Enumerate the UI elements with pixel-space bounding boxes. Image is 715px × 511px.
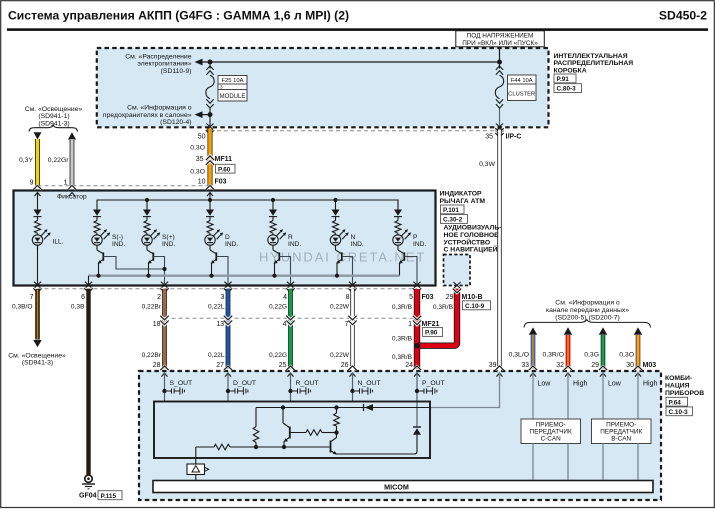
svg-text:C.80-3: C.80-3 xyxy=(557,86,577,93)
svg-text:C.10-3: C.10-3 xyxy=(669,409,689,416)
svg-text:High: High xyxy=(573,380,588,387)
svg-text:MF11: MF11 xyxy=(215,156,233,163)
svg-text:0,3W: 0,3W xyxy=(479,161,495,168)
svg-text:8: 8 xyxy=(346,294,350,301)
svg-text:ПРИЕМО-: ПРИЕМО- xyxy=(606,422,636,429)
svg-text:0,22L: 0,22L xyxy=(208,304,225,311)
svg-text:P.90: P.90 xyxy=(425,330,438,337)
svg-text:P.91: P.91 xyxy=(557,76,570,83)
svg-text:10: 10 xyxy=(198,179,206,186)
svg-text:N_OUT: N_OUT xyxy=(358,380,381,387)
svg-text:См. «Освещение»: См. «Освещение» xyxy=(25,106,83,113)
svg-text:C-CAN: C-CAN xyxy=(541,436,562,443)
svg-text:ПРИ «ВКЛ» ИЛИ «ПУСК»: ПРИ «ВКЛ» ИЛИ «ПУСК» xyxy=(462,40,538,47)
svg-text:29: 29 xyxy=(446,294,454,301)
svg-text:0,22G: 0,22G xyxy=(269,304,287,311)
svg-text:GF04: GF04 xyxy=(79,493,97,500)
svg-text:7: 7 xyxy=(345,321,349,328)
svg-text:35: 35 xyxy=(196,156,204,163)
svg-text:R_OUT: R_OUT xyxy=(296,380,319,387)
svg-text:С НАВИГАЦИЕЙ: С НАВИГАЦИЕЙ xyxy=(444,245,498,254)
svg-text:IND.: IND. xyxy=(413,241,426,248)
svg-text:0,3O: 0,3O xyxy=(190,168,205,175)
svg-text:D_OUT: D_OUT xyxy=(233,380,256,387)
svg-text:IND.: IND. xyxy=(288,241,301,248)
svg-text:CLUSTER: CLUSTER xyxy=(508,92,535,98)
svg-text:26: 26 xyxy=(341,362,349,369)
svg-text:4: 4 xyxy=(283,294,287,301)
svg-text:УСТРОЙСТВО: УСТРОЙСТВО xyxy=(444,237,491,246)
svg-text:0,3B: 0,3B xyxy=(71,304,85,311)
svg-text:Система управления АКПП (G4FG: Система управления АКПП (G4FG : GAMMA 1,… xyxy=(8,9,349,23)
svg-text:0,3R/O: 0,3R/O xyxy=(542,351,564,358)
svg-text:канале передачи данных»: канале передачи данных» xyxy=(546,307,629,314)
svg-text:I/P-C: I/P-C xyxy=(506,134,522,141)
svg-text:0,3O: 0,3O xyxy=(619,351,634,358)
svg-text:электропитания»: электропитания» xyxy=(137,61,191,68)
svg-text:0,22W: 0,22W xyxy=(330,304,350,311)
svg-text:28: 28 xyxy=(153,362,161,369)
svg-text:См. «Информация о: См. «Информация о xyxy=(127,105,192,112)
svg-text:0,22Br: 0,22Br xyxy=(142,352,162,359)
svg-text:B-CAN: B-CAN xyxy=(611,436,631,443)
svg-text:27: 27 xyxy=(216,362,224,369)
svg-text:0,22L: 0,22L xyxy=(208,352,225,359)
svg-text:M10-B: M10-B xyxy=(462,294,483,301)
svg-text:7: 7 xyxy=(30,294,34,301)
svg-text:35: 35 xyxy=(485,134,493,141)
svg-text:ILL.: ILL. xyxy=(53,239,64,246)
svg-text:ПЕРЕДАТЧИК: ПЕРЕДАТЧИК xyxy=(530,429,572,436)
svg-text:F44 10A: F44 10A xyxy=(511,78,533,84)
svg-text:См. «Распределение: См. «Распределение xyxy=(125,53,192,60)
svg-text:ПОД НАПРЯЖЕНИЕМ: ПОД НАПРЯЖЕНИЕМ xyxy=(467,33,534,40)
svg-text:Фиксатор: Фиксатор xyxy=(57,194,87,201)
svg-text:1: 1 xyxy=(64,179,68,186)
svg-text:ПЕРЕДАТЧИК: ПЕРЕДАТЧИК xyxy=(600,429,642,436)
svg-text:F03: F03 xyxy=(422,294,434,301)
svg-text:Low: Low xyxy=(608,380,622,387)
svg-text:0,3Y: 0,3Y xyxy=(19,157,33,164)
svg-text:50: 50 xyxy=(198,134,206,141)
svg-text:39: 39 xyxy=(489,362,497,369)
svg-text:MICOM: MICOM xyxy=(384,483,409,492)
svg-text:P.101: P.101 xyxy=(443,207,459,214)
svg-text:2: 2 xyxy=(157,294,161,301)
svg-text:КОРОБКА: КОРОБКА xyxy=(554,68,587,75)
svg-text:4: 4 xyxy=(283,321,287,328)
svg-text:Low: Low xyxy=(538,380,552,387)
svg-text:IND.: IND. xyxy=(225,241,238,248)
svg-text:3: 3 xyxy=(220,85,223,90)
svg-text:33: 33 xyxy=(521,362,529,369)
svg-text:P.60: P.60 xyxy=(218,166,231,173)
svg-text:IND.: IND. xyxy=(112,241,125,248)
svg-text:5: 5 xyxy=(409,294,413,301)
svg-text:ИНДИКАТОР: ИНДИКАТОР xyxy=(440,190,483,197)
svg-text:IND.: IND. xyxy=(351,241,364,248)
svg-text:P.115: P.115 xyxy=(101,493,117,500)
svg-text:SD450-2: SD450-2 xyxy=(659,9,707,23)
svg-text:0,22Gr: 0,22Gr xyxy=(48,157,70,164)
svg-text:F25 10A: F25 10A xyxy=(222,78,244,84)
svg-text:НОЕ ГОЛОВНОЕ: НОЕ ГОЛОВНОЕ xyxy=(444,232,500,239)
svg-text:(SD120-4): (SD120-4) xyxy=(160,119,191,126)
svg-text:0,3L/O: 0,3L/O xyxy=(509,351,529,358)
svg-text:0,3R/B: 0,3R/B xyxy=(392,304,413,311)
svg-text:P_OUT: P_OUT xyxy=(422,380,445,387)
svg-text:КОМБИ-: КОМБИ- xyxy=(665,375,692,382)
svg-text:РЫЧАГА АТМ: РЫЧАГА АТМ xyxy=(440,198,486,205)
svg-text:29: 29 xyxy=(591,362,599,369)
svg-text:См. «Освещение»: См. «Освещение» xyxy=(8,352,66,359)
svg-text:ПРИБОРОВ: ПРИБОРОВ xyxy=(665,390,704,397)
svg-text:32: 32 xyxy=(556,362,564,369)
svg-text:High: High xyxy=(643,380,658,387)
svg-text:НАЦИЯ: НАЦИЯ xyxy=(665,382,690,389)
svg-text:ПРИЕМО-: ПРИЕМО- xyxy=(536,422,566,429)
svg-text:30: 30 xyxy=(626,362,634,369)
svg-text:S_OUT: S_OUT xyxy=(170,380,193,387)
svg-text:C.30-2: C.30-2 xyxy=(443,217,463,224)
svg-text:3: 3 xyxy=(221,294,225,301)
svg-text:0,3R/B: 0,3R/B xyxy=(433,304,454,311)
svg-text:18: 18 xyxy=(153,321,161,328)
svg-text:ИНТЕЛЛЕКТУАЛЬНАЯ: ИНТЕЛЛЕКТУАЛЬНАЯ xyxy=(554,53,628,60)
svg-text:24: 24 xyxy=(405,362,413,369)
svg-text:P: P xyxy=(413,234,418,241)
svg-text:P.64: P.64 xyxy=(669,399,682,406)
svg-text:S(+): S(+) xyxy=(162,234,175,241)
svg-text:M03: M03 xyxy=(643,362,657,369)
svg-text:S(-): S(-) xyxy=(112,234,123,241)
svg-text:F03: F03 xyxy=(215,179,227,186)
svg-text:C.10-9: C.10-9 xyxy=(465,303,485,310)
svg-text:0,3R/B: 0,3R/B xyxy=(392,354,413,361)
svg-text:См. «Информация о: См. «Информация о xyxy=(555,300,620,307)
svg-text:0,3G: 0,3G xyxy=(584,351,599,358)
svg-text:0,22G: 0,22G xyxy=(269,352,287,359)
svg-text:(SD110-9): (SD110-9) xyxy=(161,68,192,75)
svg-text:0,3R/B: 0,3R/B xyxy=(392,335,413,342)
svg-text:0,3B/O: 0,3B/O xyxy=(12,304,33,311)
svg-text:0,22Br: 0,22Br xyxy=(142,304,162,311)
svg-text:N: N xyxy=(351,234,356,241)
svg-text:IND.: IND. xyxy=(162,241,175,248)
svg-text:0,3O: 0,3O xyxy=(190,145,205,152)
svg-text:0,22W: 0,22W xyxy=(330,352,350,359)
svg-text:РАСПРЕДЕЛИТЕЛЬНАЯ: РАСПРЕДЕЛИТЕЛЬНАЯ xyxy=(554,60,634,67)
svg-text:MF21: MF21 xyxy=(422,321,440,328)
svg-text:(SD941-1): (SD941-1) xyxy=(38,113,69,120)
svg-text:R: R xyxy=(288,234,293,241)
svg-text:MODULE: MODULE xyxy=(220,94,246,100)
svg-text:АУДИОВИЗУАЛЬ-: АУДИОВИЗУАЛЬ- xyxy=(444,225,502,232)
svg-text:9: 9 xyxy=(30,179,34,186)
svg-text:(SD941-3): (SD941-3) xyxy=(22,359,53,366)
svg-text:6: 6 xyxy=(81,294,85,301)
svg-text:D: D xyxy=(225,234,230,241)
svg-text:предохранителях в салоне»: предохранителях в салоне» xyxy=(103,112,192,119)
svg-text:25: 25 xyxy=(279,362,287,369)
svg-text:13: 13 xyxy=(216,321,224,328)
svg-text:1: 1 xyxy=(408,321,412,328)
